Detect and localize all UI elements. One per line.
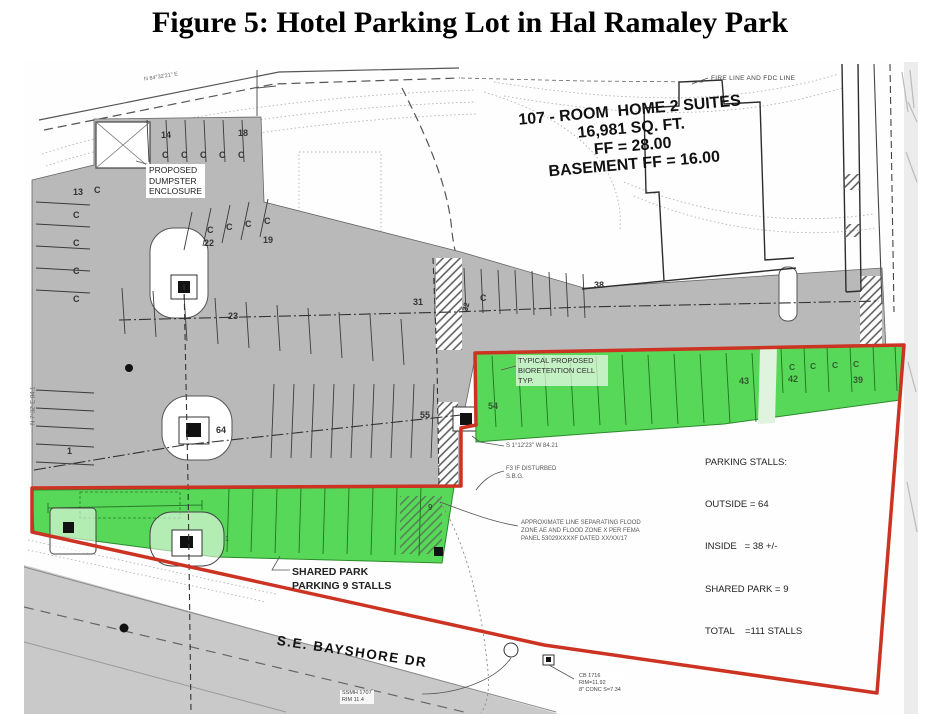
stall-number-1: 1: [67, 446, 72, 457]
flood-zone-note: APPROXIMATE LINE SEPARATING FLOOD ZONE A…: [521, 519, 641, 543]
bioretention-line3: TYP.: [518, 376, 606, 386]
stall-number-54: 54: [488, 401, 498, 412]
parking-summary: PARKING STALLS: OUTSIDE = 64 INSIDE = 38…: [705, 428, 802, 667]
site-plan: FIRE LINE AND FDC LINE N 84°32'21" E 107…: [24, 62, 918, 714]
figure-title: Figure 5: Hotel Parking Lot in Hal Ramal…: [0, 6, 940, 40]
figure-page: Figure 5: Hotel Parking Lot in Hal Ramal…: [0, 0, 940, 722]
if-disturbed-line1: F3 IF DISTURBED: [506, 466, 556, 474]
shared-park-line2: PARKING 9 STALLS: [292, 579, 391, 593]
stall-number-1-shared: 1: [225, 536, 229, 545]
stall-number-55: 55: [420, 410, 430, 421]
catch-basin-note: CB 1716 RIM=11.92 8" CONC S=7.34: [577, 673, 623, 694]
if-disturbed-line2: S.B.G.: [506, 474, 556, 482]
bioretention-line2: BIORETENTION CELL: [518, 366, 606, 376]
manhole-note: SSMH 1707 RIM 11.4: [340, 690, 374, 704]
parking-summary-line1: PARKING STALLS:: [705, 456, 802, 470]
stall-number-31: 31: [413, 297, 423, 308]
stall-number-19: 19: [263, 235, 273, 246]
flood-zone-line2: ZONE AE AND FLOOD ZONE X PER FEMA: [521, 527, 641, 535]
stall-letter-c: C: [245, 219, 252, 230]
stall-letter-c: C: [789, 362, 795, 373]
stall-number-64: 64: [216, 425, 226, 436]
parking-summary-line2: OUTSIDE = 64: [705, 498, 802, 512]
bioretention-line1: TYPICAL PROPOSED: [518, 356, 606, 366]
parking-summary-line4: SHARED PARK = 9: [705, 583, 802, 597]
stall-letter-c: C: [73, 294, 80, 305]
dumpster-label: PROPOSED DUMPSTER ENCLOSURE: [146, 164, 205, 198]
stall-number-42: 42: [788, 374, 798, 385]
boundary-bearing-label: S 1°12'23" W 84.21: [506, 443, 558, 451]
stall-number-14: 14: [161, 130, 171, 141]
stall-number-43: 43: [739, 376, 749, 387]
stall-letter-c: C: [181, 150, 188, 161]
stall-letter-c: C: [207, 225, 214, 236]
stall-letter-c: C: [238, 150, 245, 161]
stall-letter-c: C: [853, 359, 859, 370]
stall-number-23: 23: [228, 311, 238, 322]
stall-letter-c: C: [73, 238, 80, 249]
stall-letter-c: C: [480, 293, 487, 304]
stall-number-9: 9: [428, 503, 432, 513]
stall-letter-c: C: [73, 266, 80, 277]
manhole-line2: RIM 11.4: [342, 697, 372, 704]
flood-zone-line1: APPROXIMATE LINE SEPARATING FLOOD: [521, 519, 641, 527]
manhole-line1: SSMH 1707: [342, 690, 372, 697]
catch-basin-line3: 8" CONC S=7.34: [579, 687, 621, 694]
fire-line-label: FIRE LINE AND FDC LINE: [711, 75, 795, 83]
catch-basin-line2: RIM=11.92: [579, 680, 621, 687]
stall-letter-c: C: [73, 210, 80, 221]
stall-letter-c: C: [226, 222, 233, 233]
dumpster-label-line1: PROPOSED: [149, 165, 202, 176]
stall-number-18: 18: [238, 128, 248, 139]
stall-number-22: 22: [204, 238, 214, 249]
catch-basin-line1: CB 1716: [579, 673, 621, 680]
dumpster-label-line3: ENCLOSURE: [149, 186, 202, 197]
stall-letter-c: C: [219, 150, 226, 161]
stall-letter-c: C: [832, 360, 838, 371]
bioretention-label: TYPICAL PROPOSED BIORETENTION CELL TYP.: [516, 355, 608, 386]
stall-letter-c: C: [264, 216, 271, 227]
stall-letter-c: C: [810, 361, 816, 372]
stall-number-13: 13: [73, 187, 83, 198]
if-disturbed-note: F3 IF DISTURBED S.B.G.: [506, 466, 556, 482]
dumpster-label-line2: DUMPSTER: [149, 176, 202, 187]
stall-letter-c: C: [162, 150, 169, 161]
stall-letter-c: C: [200, 150, 207, 161]
parking-summary-line3: INSIDE = 38 +/-: [705, 540, 802, 554]
stall-number-39: 39: [853, 375, 863, 386]
flood-zone-line3: PANEL 53029XXXXF DATED XX/XX/17: [521, 535, 641, 543]
left-bearing-label: N 7°32' E 84.1: [30, 366, 38, 446]
parking-summary-line5: TOTAL =111 STALLS: [705, 625, 802, 639]
shared-park-label: SHARED PARK PARKING 9 STALLS: [292, 565, 391, 593]
stall-number-38: 38: [594, 280, 604, 291]
stall-letter-c: C: [94, 185, 101, 196]
shared-park-line1: SHARED PARK: [292, 565, 391, 579]
